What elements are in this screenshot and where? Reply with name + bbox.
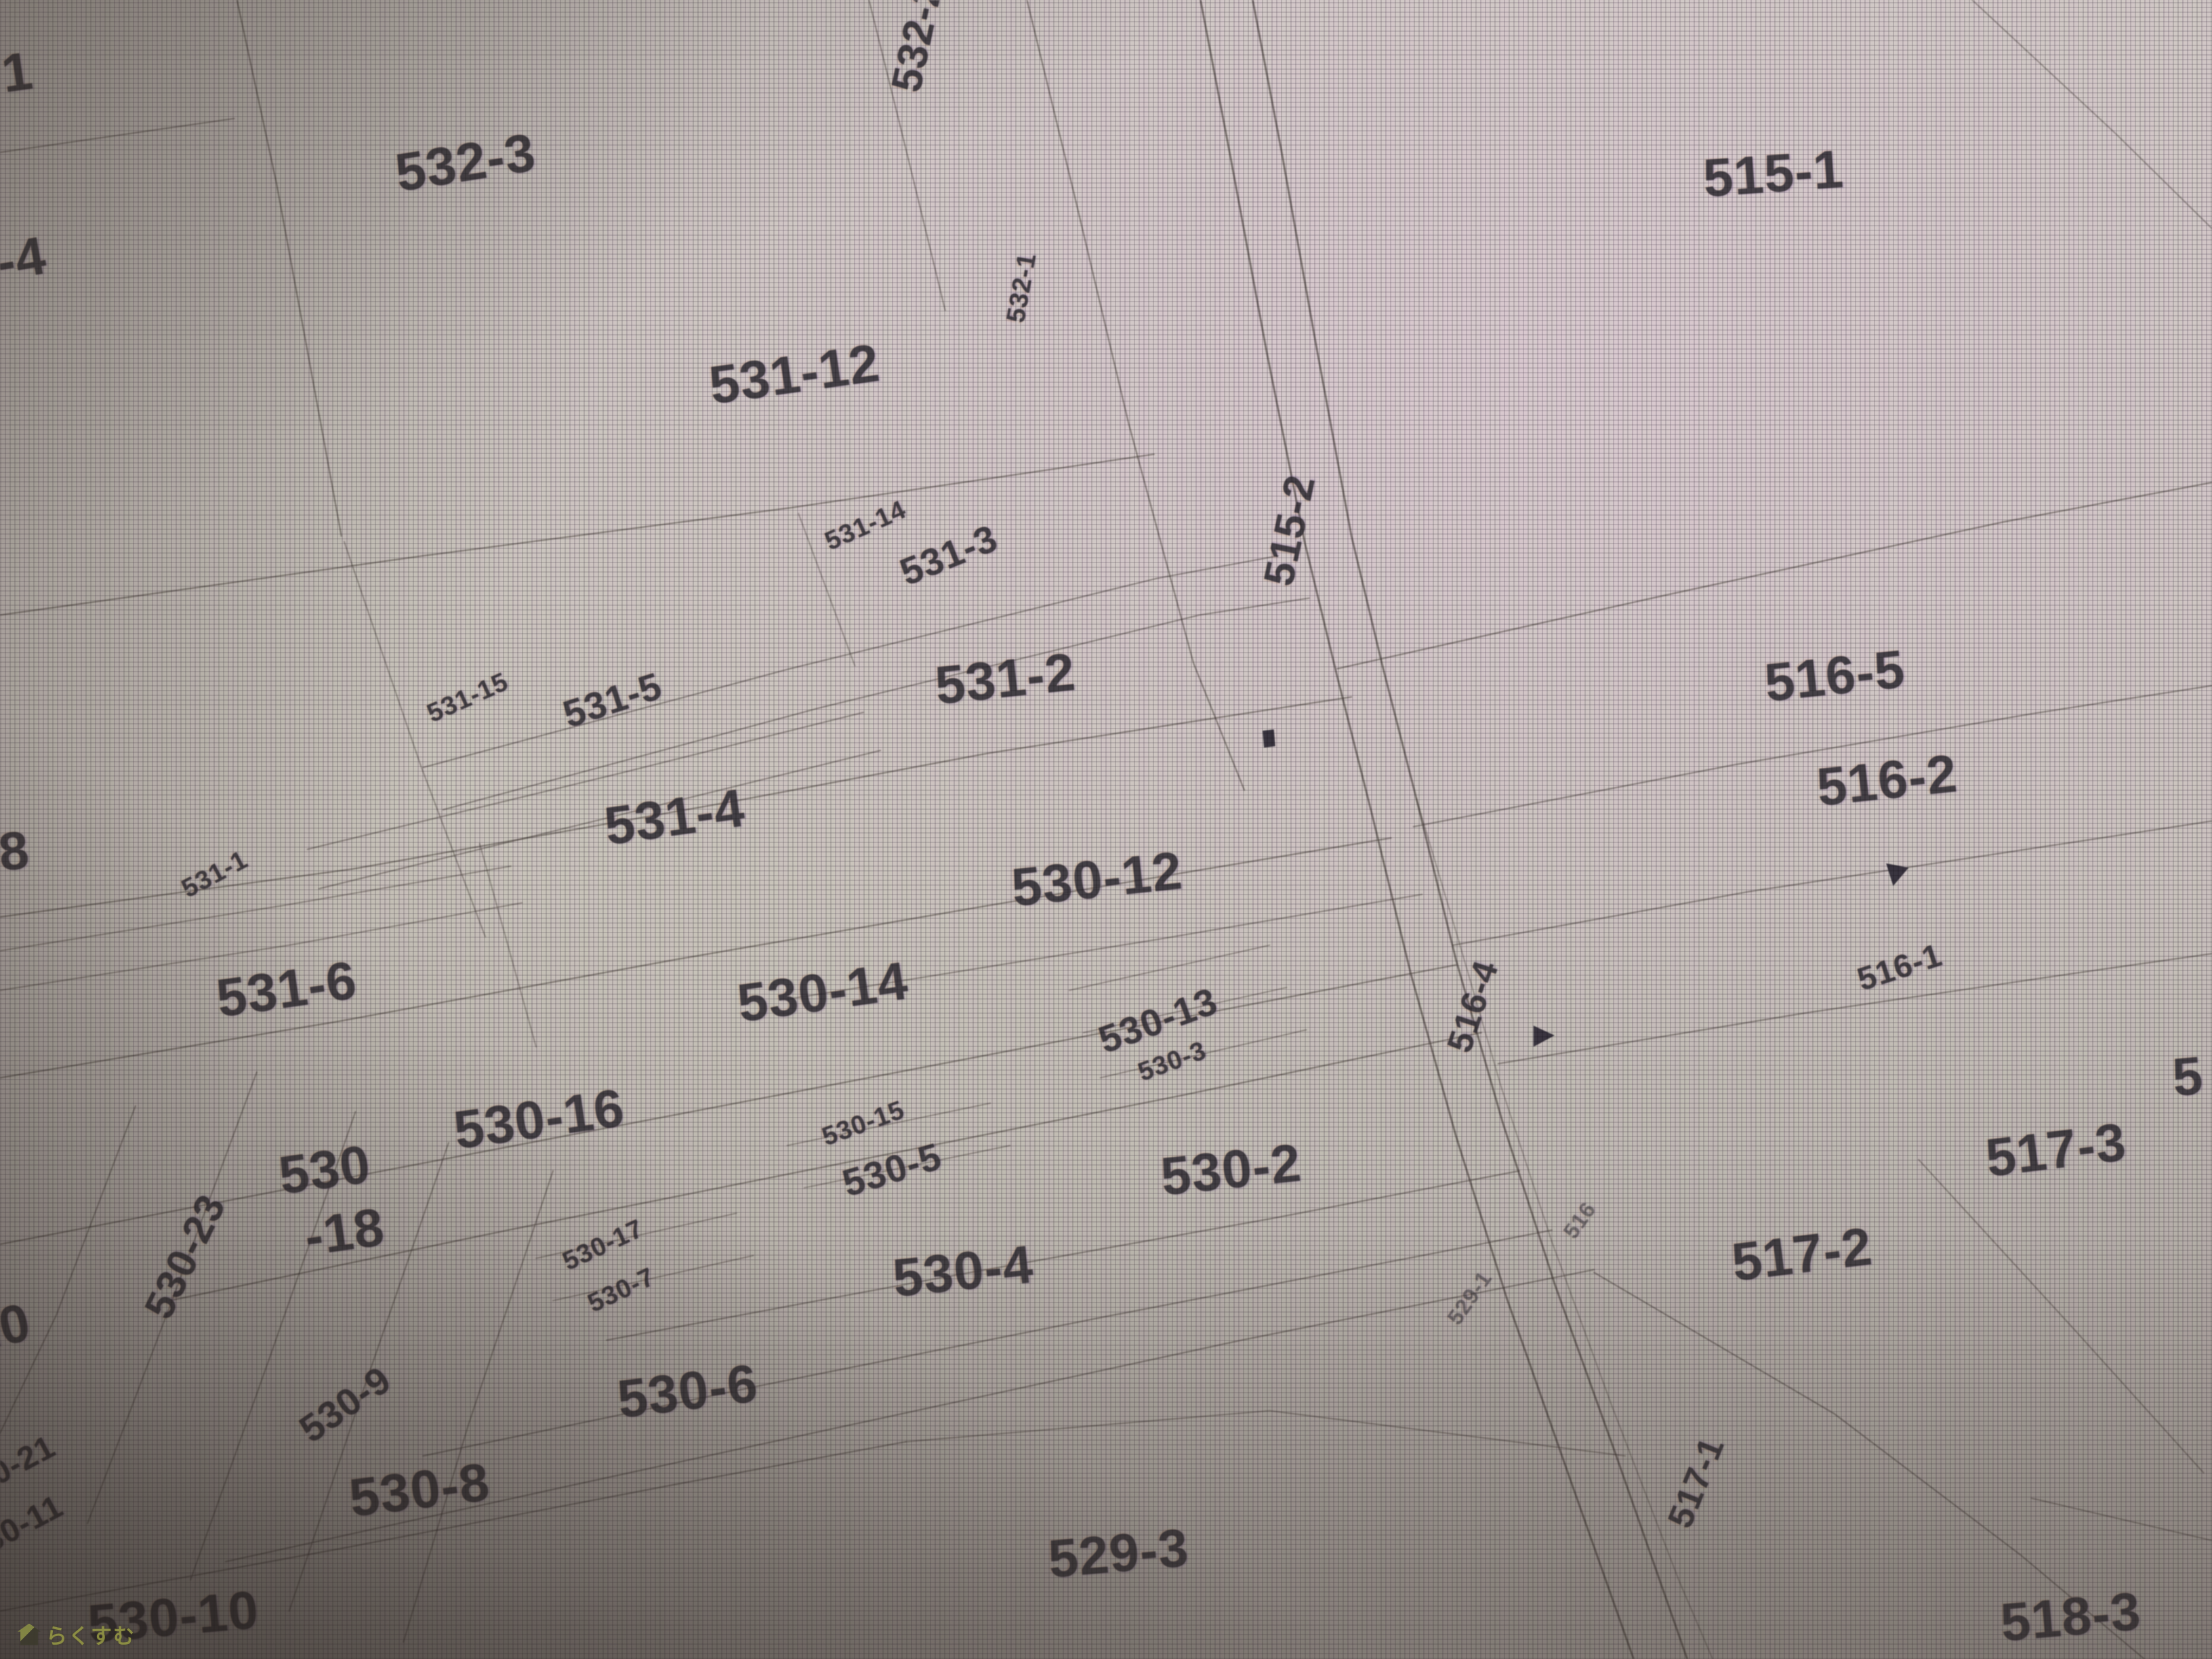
boundary-line [1069,945,1270,991]
parcel-label: 530-23 [135,1187,234,1326]
parcel-label: 530-6 [614,1352,761,1429]
parcel-label: 530-17 [558,1214,648,1276]
site-watermark: らくすむ [18,1619,136,1650]
parcel-label: 516-1 [1853,937,1946,998]
parcel-label: 530-12 [1008,840,1185,918]
parcel-label: 517-1 [1660,1432,1732,1534]
screen-photo: 132-4532-3515-1531-12532-2532-1531-14531… [0,0,2212,1659]
parcel-label: 516-4 [1440,956,1507,1057]
parcel-label: 531-1 [177,845,253,904]
parcel-label: 515-1 [1701,138,1845,208]
parcel-label: 516 [1559,1197,1601,1243]
parcel-label: 32-4 [0,224,51,303]
parcel-labels: 132-4532-3515-1531-12532-2532-1531-14531… [0,0,2206,1654]
boundary-line [423,556,1277,767]
parcel-label: 530-8 [346,1451,493,1528]
boundary-line [2032,1498,2212,1540]
parcel-label: 1-8 [0,819,33,888]
parcel-label: 531-3 [894,516,1004,594]
boundary-line [1200,0,1633,1659]
parcel-label: 531-5 [558,664,667,736]
cadastral-map: 132-4532-3515-1531-12532-2532-1531-14531… [0,0,2212,1659]
parcel-label: 530-11 [0,1488,69,1568]
parcel-label: 516-2 [1814,743,1961,817]
house-icon [18,1624,41,1645]
boundary-line [403,1171,553,1642]
boundary-line [0,1106,136,1433]
boundary-line [1972,0,2212,228]
parcel-label: 530-15 [818,1095,908,1152]
boundary-line [480,844,536,1047]
parcel-label: 531-4 [600,777,748,857]
parcel-label: 530-4 [890,1233,1036,1308]
parcel-label: 532-2 [882,0,952,96]
parcel-label: 530-9 [291,1357,398,1450]
parcel-label: 530 [275,1133,374,1206]
boundary-line [319,750,880,888]
triangle-marker [1534,1025,1555,1046]
parcel-label: 529-3 [1046,1517,1191,1589]
parcel-label: 517-2 [1729,1216,1876,1293]
boundary-line [237,0,342,536]
parcel-label: 530-14 [734,950,912,1033]
parcel-label: 518-3 [1998,1580,2143,1653]
parcel-label: -20 [0,1291,36,1366]
parcel-label: 515-2 [1255,471,1325,590]
boundary-line [1919,1160,2203,1473]
parcel-label: 532-3 [391,121,539,203]
parcel-label: 531-6 [213,949,361,1029]
boundary-line [308,712,863,849]
small-mark [1263,729,1275,747]
parcel-label: 531-14 [821,495,911,556]
parcel-label: 530-16 [450,1077,628,1160]
parcel-label: 531-15 [423,667,513,729]
parcel-label: 5 [2170,1045,2206,1108]
watermark-text: らくすむ [46,1619,136,1650]
boundary-line [1252,0,1687,1659]
parcel-label: 517-3 [1982,1111,2129,1188]
boundary-line [905,1411,1625,1456]
parcel-label: 530-7 [583,1262,659,1318]
map-markers [1263,729,1908,1046]
parcel-label: 530-5 [838,1134,947,1205]
parcel-label: 532-1 [1001,251,1042,325]
parcel-label: 530-2 [1158,1132,1305,1206]
boundary-line [0,866,511,951]
parcel-label: -18 [301,1196,388,1267]
parcel-label: 531-2 [933,641,1079,716]
triangle-marker [1886,863,1908,886]
boundary-line [0,119,234,152]
boundary-line [1337,483,2212,669]
parcel-label: 531-12 [705,332,883,415]
boundary-line [1453,821,2212,945]
boundary-line [607,1171,1519,1340]
parcel-label: 516-5 [1762,638,1908,713]
parcel-label: 1 [0,40,37,104]
